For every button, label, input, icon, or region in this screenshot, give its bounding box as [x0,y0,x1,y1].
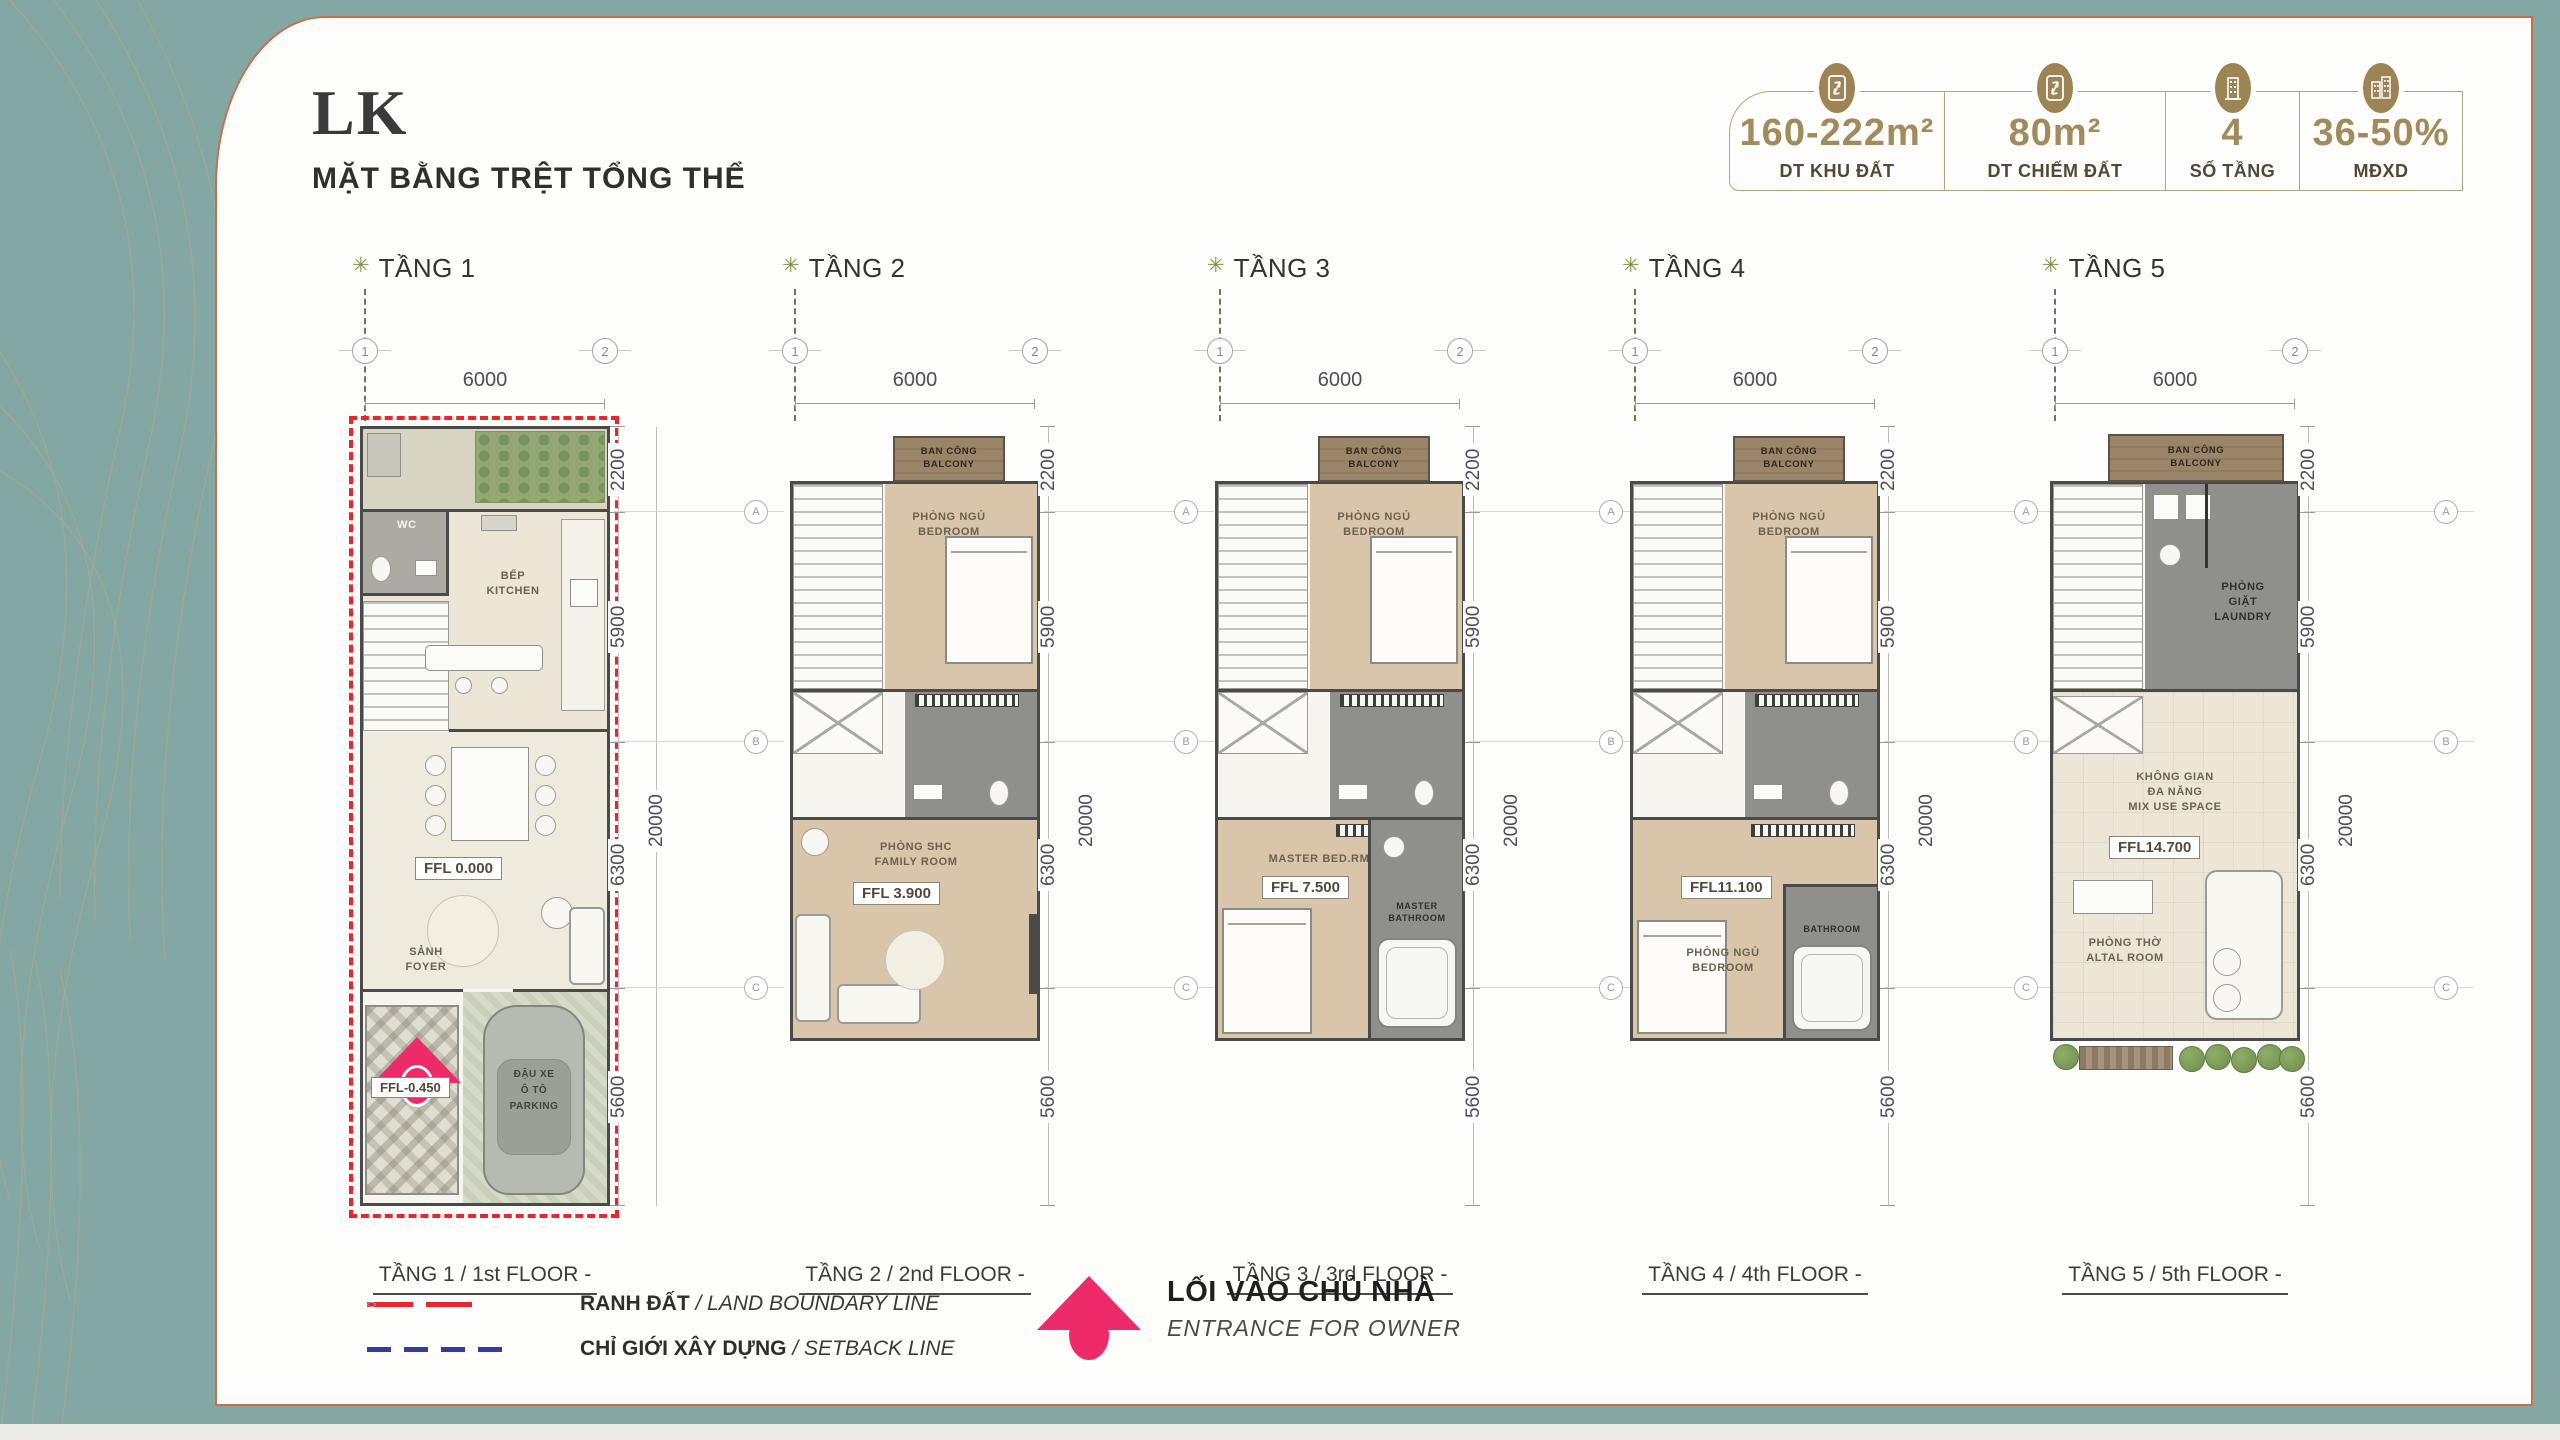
floor-plan-3: ✳ TẦNG 3 1 2 6000 BAN CÔNG BALCONY PHÒNG… [1215,241,1645,1371]
car: ĐẬU XE Ô TÔ PARKING [483,1005,585,1195]
toilet [989,780,1009,806]
floor-title: ✳ TẦNG 2 [782,253,906,284]
sink [1338,784,1368,800]
dim-20000: 20000 [2329,571,2365,1071]
width-dimension: 6000 [2055,369,2295,392]
floor-plan-1: ✳ TẦNG 1 1 2 6000 WC [360,241,790,1371]
family-room-label: PHÒNG SHC FAMILY ROOM [851,840,981,870]
master-bathroom: MASTER BATHROOM [1368,820,1462,1038]
floor-title: ✳ TẦNG 3 [1207,253,1331,284]
dining-chair [425,785,446,806]
dim-2200: 2200 [1456,427,1492,512]
asterisk-marker-icon: ✳ [782,253,800,278]
grid-column-2: 2 [1447,338,1473,364]
foyer-label: SẢNH FOYER [391,945,461,975]
grid-column-2: 2 [2282,338,2308,364]
stat-value: 4 [2221,114,2243,152]
stove [570,579,598,607]
floor-caption: TẦNG 1 / 1st FLOOR - [360,1263,610,1287]
balcony: BAN CÔNG BALCONY [2108,434,2284,482]
dim-2200: 2200 [2291,427,2327,512]
land-area-icon [1814,58,1860,118]
balcony-label: BAN CÔNG BALCONY [921,446,978,472]
stat-label: SỐ TẦNG [2190,161,2276,182]
stat-label: DT KHU ĐẤT [1780,161,1895,182]
bedroom-label: PHÒNG NGỦ BEDROOM [1314,510,1434,540]
kitchen-sink [481,515,517,531]
plan-outline: BAN CÔNG BALCONY PHÒNG NGỦ BEDROOM MASTE… [1215,481,1465,1041]
bedroom-label: PHÒNG NGỦ BEDROOM [889,510,1009,540]
plant-bush [2231,1047,2257,1073]
laundry-label: PHÒNG GIẶT LAUNDRY [2193,580,2293,625]
dim-2200: 2200 [601,427,637,512]
legend-boundary-vn: RANH ĐẤT [580,1292,690,1315]
grid-row-B: B [1599,730,1623,754]
ffl-level: FFL14.700 [2109,836,2200,859]
grid-row-B: B [744,730,768,754]
wc-label: WC [397,518,417,533]
page-bottom-strip [0,1424,2560,1440]
planter [367,433,401,477]
floor-plan-4: ✳ TẦNG 4 1 2 6000 BAN CÔNG BALCONY PHÒNG… [1630,241,2060,1371]
master-bathroom-label: MASTER BATHROOM [1377,900,1457,924]
bed [1370,536,1458,664]
dim-5900: 5900 [2291,512,2327,742]
grid-row-A: A [2014,500,2038,524]
asterisk-marker-icon: ✳ [1207,253,1225,278]
staircase [1218,484,1308,689]
grid-row-A: A [2434,500,2458,524]
grid-column-2: 2 [1862,338,1888,364]
bedroom2-label: PHÒNG NGỦ BEDROOM [1663,946,1783,976]
toilet [371,556,391,582]
kitchen-island [425,645,543,671]
ffl-level: FFL11.100 [1681,876,1772,899]
grid-column-1: 1 [352,338,378,364]
balcony-label: BAN CÔNG BALCONY [2168,445,2225,471]
dim-6300: 6300 [1456,742,1492,988]
owner-entrance-icon [1037,1276,1141,1362]
plan-outline: BAN CÔNG BALCONY PHÒNG NGỦ BEDROOM PHÒNG… [790,481,1040,1041]
plant [801,828,829,856]
bathtub [1792,945,1872,1031]
stats-bar: 160-222m² DT KHU ĐẤT 80m² DT CHIẾM ĐẤT 4… [1729,91,2463,191]
sink [1753,784,1783,800]
dim-20000: 20000 [1494,571,1530,1071]
stool [2213,984,2241,1012]
stool [2213,948,2241,976]
washer [2153,494,2179,520]
toilet [1829,780,1849,806]
front-deck [2079,1046,2173,1070]
width-dimension: 6000 [795,369,1035,392]
page-header: LK MẶT BẰNG TRỆT TỔNG THỂ [312,76,746,196]
dining-chair [425,755,446,776]
dim-6300: 6300 [1871,742,1907,988]
dim-6300: 6300 [2291,742,2327,988]
rug [885,930,945,990]
plan-outline: WC BẾP KITCHEN [360,426,610,1206]
staircase [793,484,883,689]
laundry-zone: PHÒNG GIẶT LAUNDRY [2145,484,2297,689]
grid-row-A: A [1174,500,1198,524]
altar-room-label: PHÒNG THỜ ALTAL ROOM [2065,936,2185,966]
stool [455,677,472,694]
floor-title: ✳ TẦNG 1 [352,253,476,284]
stair-railing [1755,694,1859,707]
dim-5600: 5600 [1871,988,1907,1206]
page-subtitle: MẶT BẰNG TRỆT TỔNG THỂ [312,162,746,196]
dim-2200: 2200 [1031,427,1067,512]
plan-outline: BAN CÔNG BALCONY PHÒNG GIẶT LAUNDRY [2050,481,2300,1041]
dim-5600: 5600 [601,988,637,1206]
entrance-label-vn: LỐI VÀO CHỦ NHÀ [1167,1276,1461,1309]
boundary-line-sample [367,1302,502,1307]
parking-label: ĐẬU XE Ô TÔ PARKING [485,1067,583,1115]
closet [1218,692,1308,754]
stool [491,677,508,694]
stat-label: DT CHIẾM ĐẤT [1988,161,2123,182]
dim-6300: 6300 [601,742,637,988]
closet [793,692,883,754]
legend-entrance: LỐI VÀO CHỦ NHÀ ENTRANCE FOR OWNER [1037,1276,1461,1362]
grid-row-C: C [1174,976,1198,1000]
dining-chair [535,755,556,776]
toilet [1414,780,1434,806]
balcony: BAN CÔNG BALCONY [893,436,1005,482]
grid-row-C: C [1599,976,1623,1000]
sink [913,784,943,800]
stair-railing [915,694,1019,707]
bed [945,536,1033,664]
stat-land-area: 160-222m² DT KHU ĐẤT [1730,92,1944,190]
plant-bush [2205,1044,2231,1070]
stat-density: 36-50% MĐXD [2299,92,2462,190]
dim-20000: 20000 [1909,571,1945,1071]
wc-room: WC [363,512,449,596]
bed [1785,536,1873,664]
floor-plan-5: ✳ TẦNG 5 1 2 6000 BAN CÔNG BALCONY PH [2050,241,2480,1371]
stat-value: 160-222m² [1740,114,1935,152]
plan-outline: BAN CÔNG BALCONY PHÒNG NGỦ BEDROOM FFL11… [1630,481,1880,1041]
asterisk-marker-icon: ✳ [352,253,370,278]
grid-row-A: A [744,500,768,524]
setback-line-sample [367,1347,502,1352]
floor-title: ✳ TẦNG 4 [1622,253,1746,284]
build-density-icon [2358,58,2404,118]
stair-railing [1340,694,1444,707]
balcony: BAN CÔNG BALCONY [1318,436,1430,482]
garden-hedge [475,431,605,503]
content-panel: LK MẶT BẰNG TRỆT TỔNG THỂ 160-222m² DT K… [215,16,2533,1406]
kitchen-counter [561,519,605,711]
balcony-label: BAN CÔNG BALCONY [1761,446,1818,472]
dining-chair [535,815,556,836]
dim-5600: 5600 [1031,988,1067,1206]
stat-floor-count: 4 SỐ TẦNG [2165,92,2299,190]
grid-column-1: 1 [1207,338,1233,364]
floor-plan-2: ✳ TẦNG 2 1 2 6000 BAN CÔNG BALCONY PHÒNG… [790,241,1220,1371]
legend-boundary-row: RANH ĐẤT / LAND BOUNDARY LINE [367,1290,955,1318]
grid-row-C: C [2014,976,2038,1000]
bedroom-label: PHÒNG NGỦ BEDROOM [1729,510,1849,540]
sofa [795,914,831,1022]
stat-value: 80m² [2009,114,2102,152]
staircase [2053,484,2143,689]
floor-caption: TẦNG 4 / 4th FLOOR - [1630,1263,1880,1287]
dim-5600: 5600 [2291,988,2327,1206]
laundry-sink [2159,544,2181,566]
ffl-level: FFL 3.900 [853,882,940,905]
grid-row-B: B [2434,730,2458,754]
plant-bush [2179,1046,2205,1072]
grid-column-1: 1 [782,338,808,364]
dim-5900: 5900 [1031,512,1067,742]
floor-caption: TẦNG 5 / 5th FLOOR - [2050,1263,2300,1287]
entrance-label-en: ENTRANCE FOR OWNER [1167,1315,1461,1342]
stat-footprint-area: 80m² DT CHIẾM ĐẤT [1944,92,2165,190]
grid-row-A: A [1599,500,1623,524]
bathtub [1377,938,1457,1028]
dining-chair [425,815,446,836]
floor-title: ✳ TẦNG 5 [2042,253,2166,284]
altar-cabinet [2073,880,2153,914]
sofa [569,907,605,985]
bathroom-label: BATHROOM [1792,923,1872,935]
grid-column-2: 2 [592,338,618,364]
dim-20000: 20000 [639,571,675,1071]
balcony: BAN CÔNG BALCONY [1733,436,1845,482]
legend-setback-row: CHỈ GIỚI XÂY DỰNG / SETBACK LINE [367,1335,955,1363]
dim-2200: 2200 [1871,427,1907,512]
dim-5900: 5900 [601,512,637,742]
asterisk-marker-icon: ✳ [2042,253,2060,278]
kitchen-label: BẾP KITCHEN [458,569,568,599]
legend-setback-vn: CHỈ GIỚI XÂY DỰNG [580,1337,786,1360]
page-title: LK [312,76,746,150]
dim-6300: 6300 [1031,742,1067,988]
legend-boundary-en: / LAND BOUNDARY LINE [690,1292,940,1315]
width-dimension: 6000 [365,369,605,392]
parking-ffl-level: FFL-0.450 [371,1077,450,1098]
asterisk-marker-icon: ✳ [1622,253,1640,278]
master-bed [1222,908,1312,1034]
width-dimension: 6000 [1220,369,1460,392]
ffl-level: FFL 0.000 [415,857,502,880]
floor-count-icon [2210,58,2256,118]
sink [415,560,437,576]
dining-chair [535,785,556,806]
footprint-area-icon [2032,58,2078,118]
legend-setback-en: / SETBACK LINE [786,1337,954,1360]
bathroom-lower: BATHROOM [1783,884,1877,1038]
dim-5900: 5900 [1871,512,1907,742]
closet [1633,692,1723,754]
mix-use-label: KHÔNG GIAN ĐA NĂNG MIX USE SPACE [2105,770,2245,815]
floor-caption: TẦNG 2 / 2nd FLOOR - [790,1263,1040,1287]
plant-bush [2053,1044,2079,1070]
closet [2053,696,2143,754]
grid-row-B: B [1174,730,1198,754]
grid-column-2: 2 [1022,338,1048,364]
chaise [837,984,921,1024]
stat-value: 36-50% [2313,114,2450,152]
grid-column-1: 1 [1622,338,1648,364]
shower-head [1383,836,1405,858]
dining-table [451,747,529,841]
stat-label: MĐXD [2354,161,2409,182]
dim-20000: 20000 [1069,571,1105,1071]
legend: RANH ĐẤT / LAND BOUNDARY LINE CHỈ GIỚI X… [367,1290,955,1380]
grid-column-1: 1 [2042,338,2068,364]
grid-row-B: B [2014,730,2038,754]
background-contour-lines [0,0,230,1440]
bed2 [1637,920,1727,1034]
ffl-level: FFL 7.500 [1262,876,1349,899]
dim-5900: 5900 [1456,512,1492,742]
staircase [1633,484,1723,689]
balcony-label: BAN CÔNG BALCONY [1346,446,1403,472]
grid-row-C: C [744,976,768,1000]
grid-row-C: C [2434,976,2458,1000]
width-dimension: 6000 [1635,369,1875,392]
dim-5600: 5600 [1456,988,1492,1206]
stair-railing [1751,824,1855,837]
